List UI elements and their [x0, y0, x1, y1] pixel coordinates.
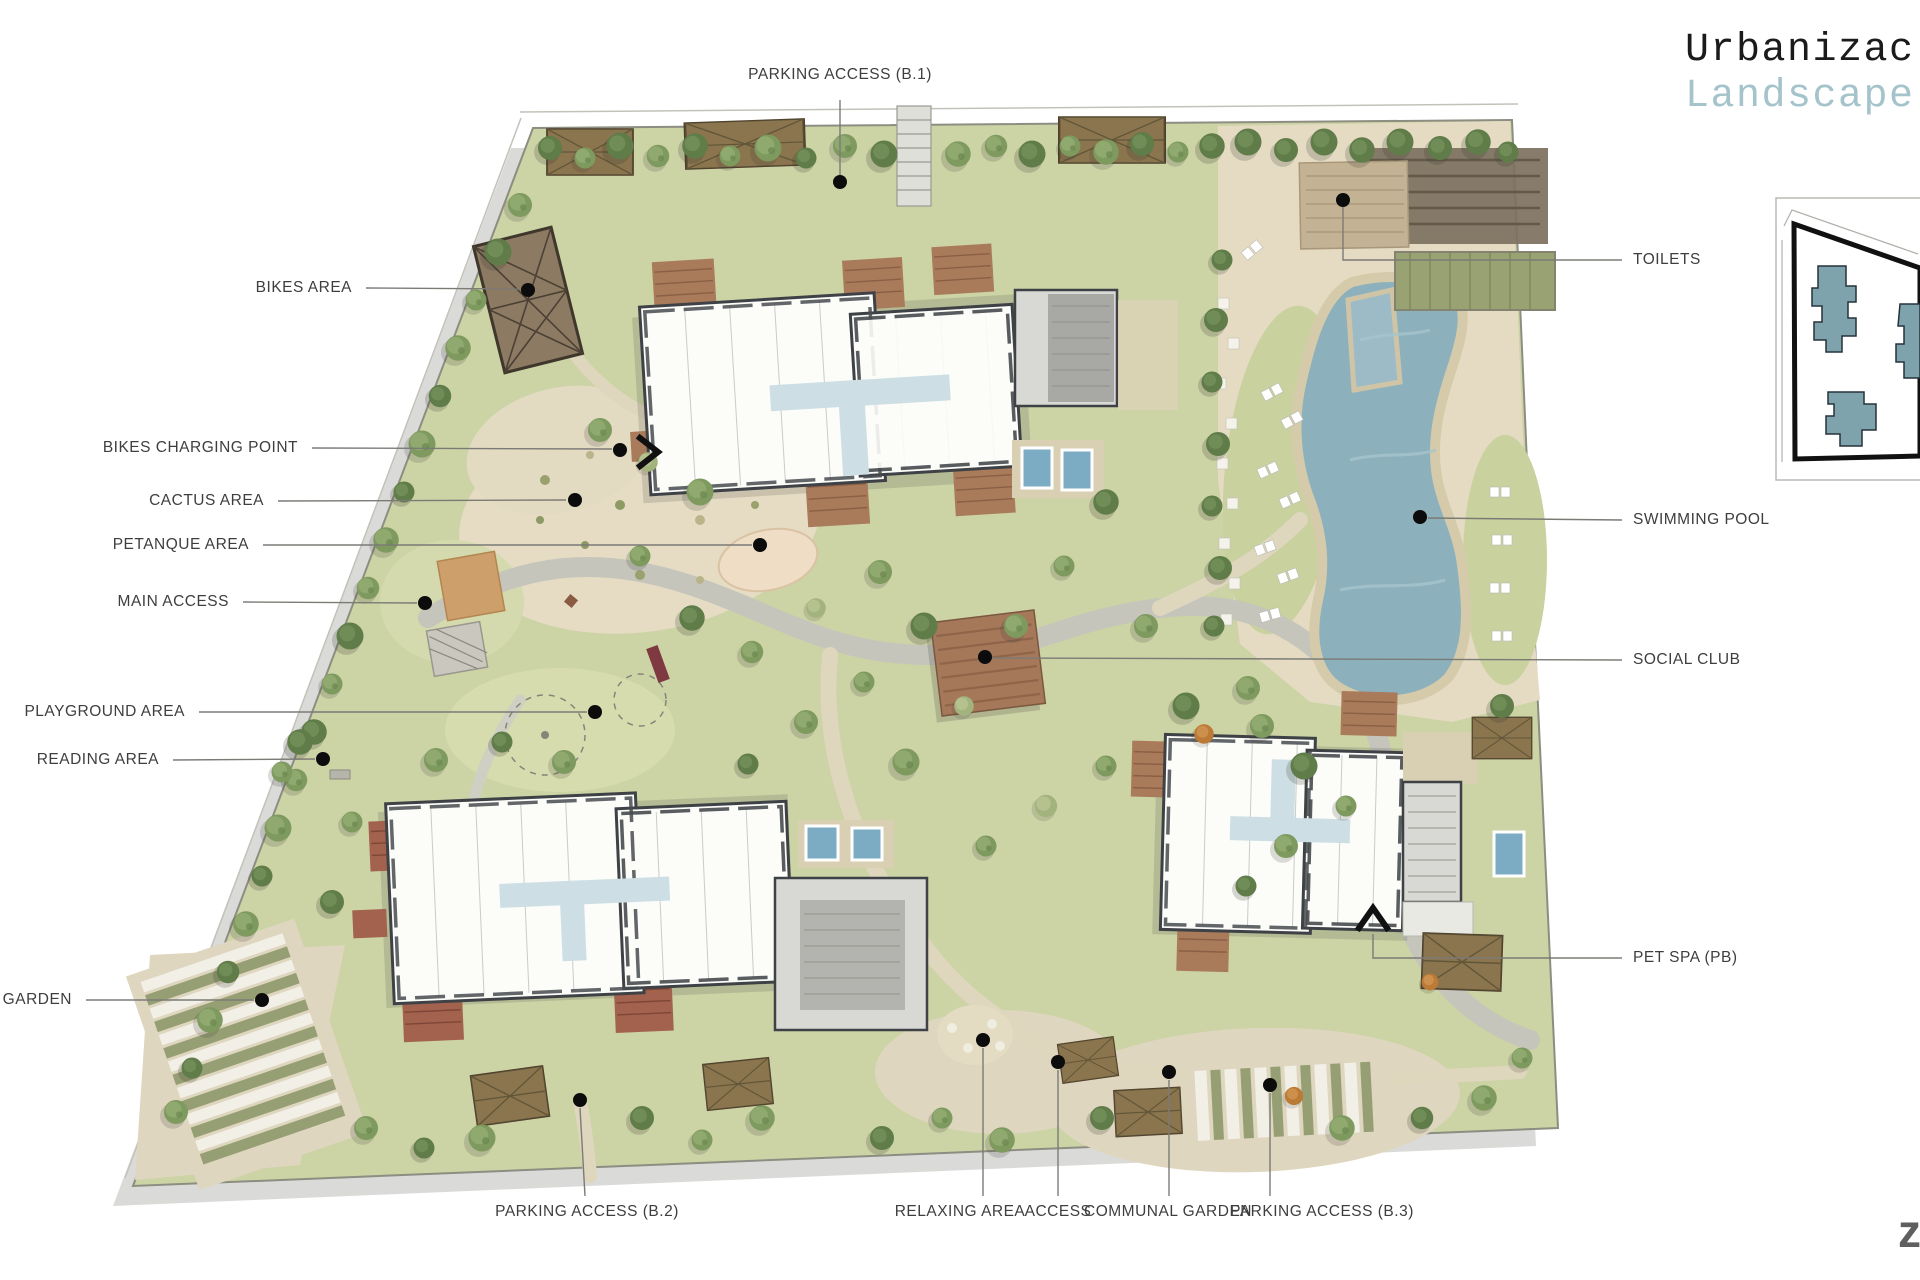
title-block: Urbanizac Landscape: [1685, 28, 1915, 120]
label-communal-garden-bottom: COMMUNAL GARDEN: [1084, 1203, 1252, 1221]
site-plan-drawing: [0, 0, 1920, 1280]
label-bikes-area: BIKES AREA: [256, 279, 352, 297]
label-pet-spa: PET SPA (PB): [1633, 949, 1738, 967]
label-social-club: SOCIAL CLUB: [1633, 651, 1740, 669]
label-playground-area: PLAYGROUND AREA: [24, 703, 185, 721]
parking-b1-gate: [897, 106, 931, 206]
label-parking-access-b3: PARKING ACCESS (B.3): [1230, 1203, 1414, 1221]
relaxing-area: [937, 1005, 1013, 1065]
z-logo-icon: z: [1898, 1204, 1920, 1258]
access-pergola: [1058, 1037, 1119, 1084]
label-cactus-area: CACTUS AREA: [149, 492, 264, 510]
label-petanque-area: PETANQUE AREA: [113, 536, 249, 554]
page-title: Urbanizac: [1685, 28, 1915, 74]
label-swimming-pool: SWIMMING POOL: [1633, 511, 1770, 529]
label-access: ACCESS: [1025, 1203, 1092, 1221]
page-subtitle: Landscape: [1685, 74, 1915, 120]
label-parking-access-b2: PARKING ACCESS (B.2): [495, 1203, 679, 1221]
label-relaxing-area: RELAXING AREA: [895, 1203, 1026, 1221]
label-reading-area: READING AREA: [37, 751, 159, 769]
label-toilets: TOILETS: [1633, 251, 1701, 269]
label-parking-access-b1: PARKING ACCESS (B.1): [748, 66, 932, 84]
swimming-pool: [1296, 277, 1466, 700]
label-communal-garden-left: L GARDEN: [0, 991, 72, 1009]
label-bikes-charging-point: BIKES CHARGING POINT: [103, 439, 298, 457]
inset-key-map: [1776, 198, 1920, 480]
landscape-masterplan-page: PARKING ACCESS (B.1) BIKES AREA BIKES CH…: [0, 0, 1920, 1280]
label-main-access: MAIN ACCESS: [118, 593, 229, 611]
reading-bench: [330, 770, 350, 779]
